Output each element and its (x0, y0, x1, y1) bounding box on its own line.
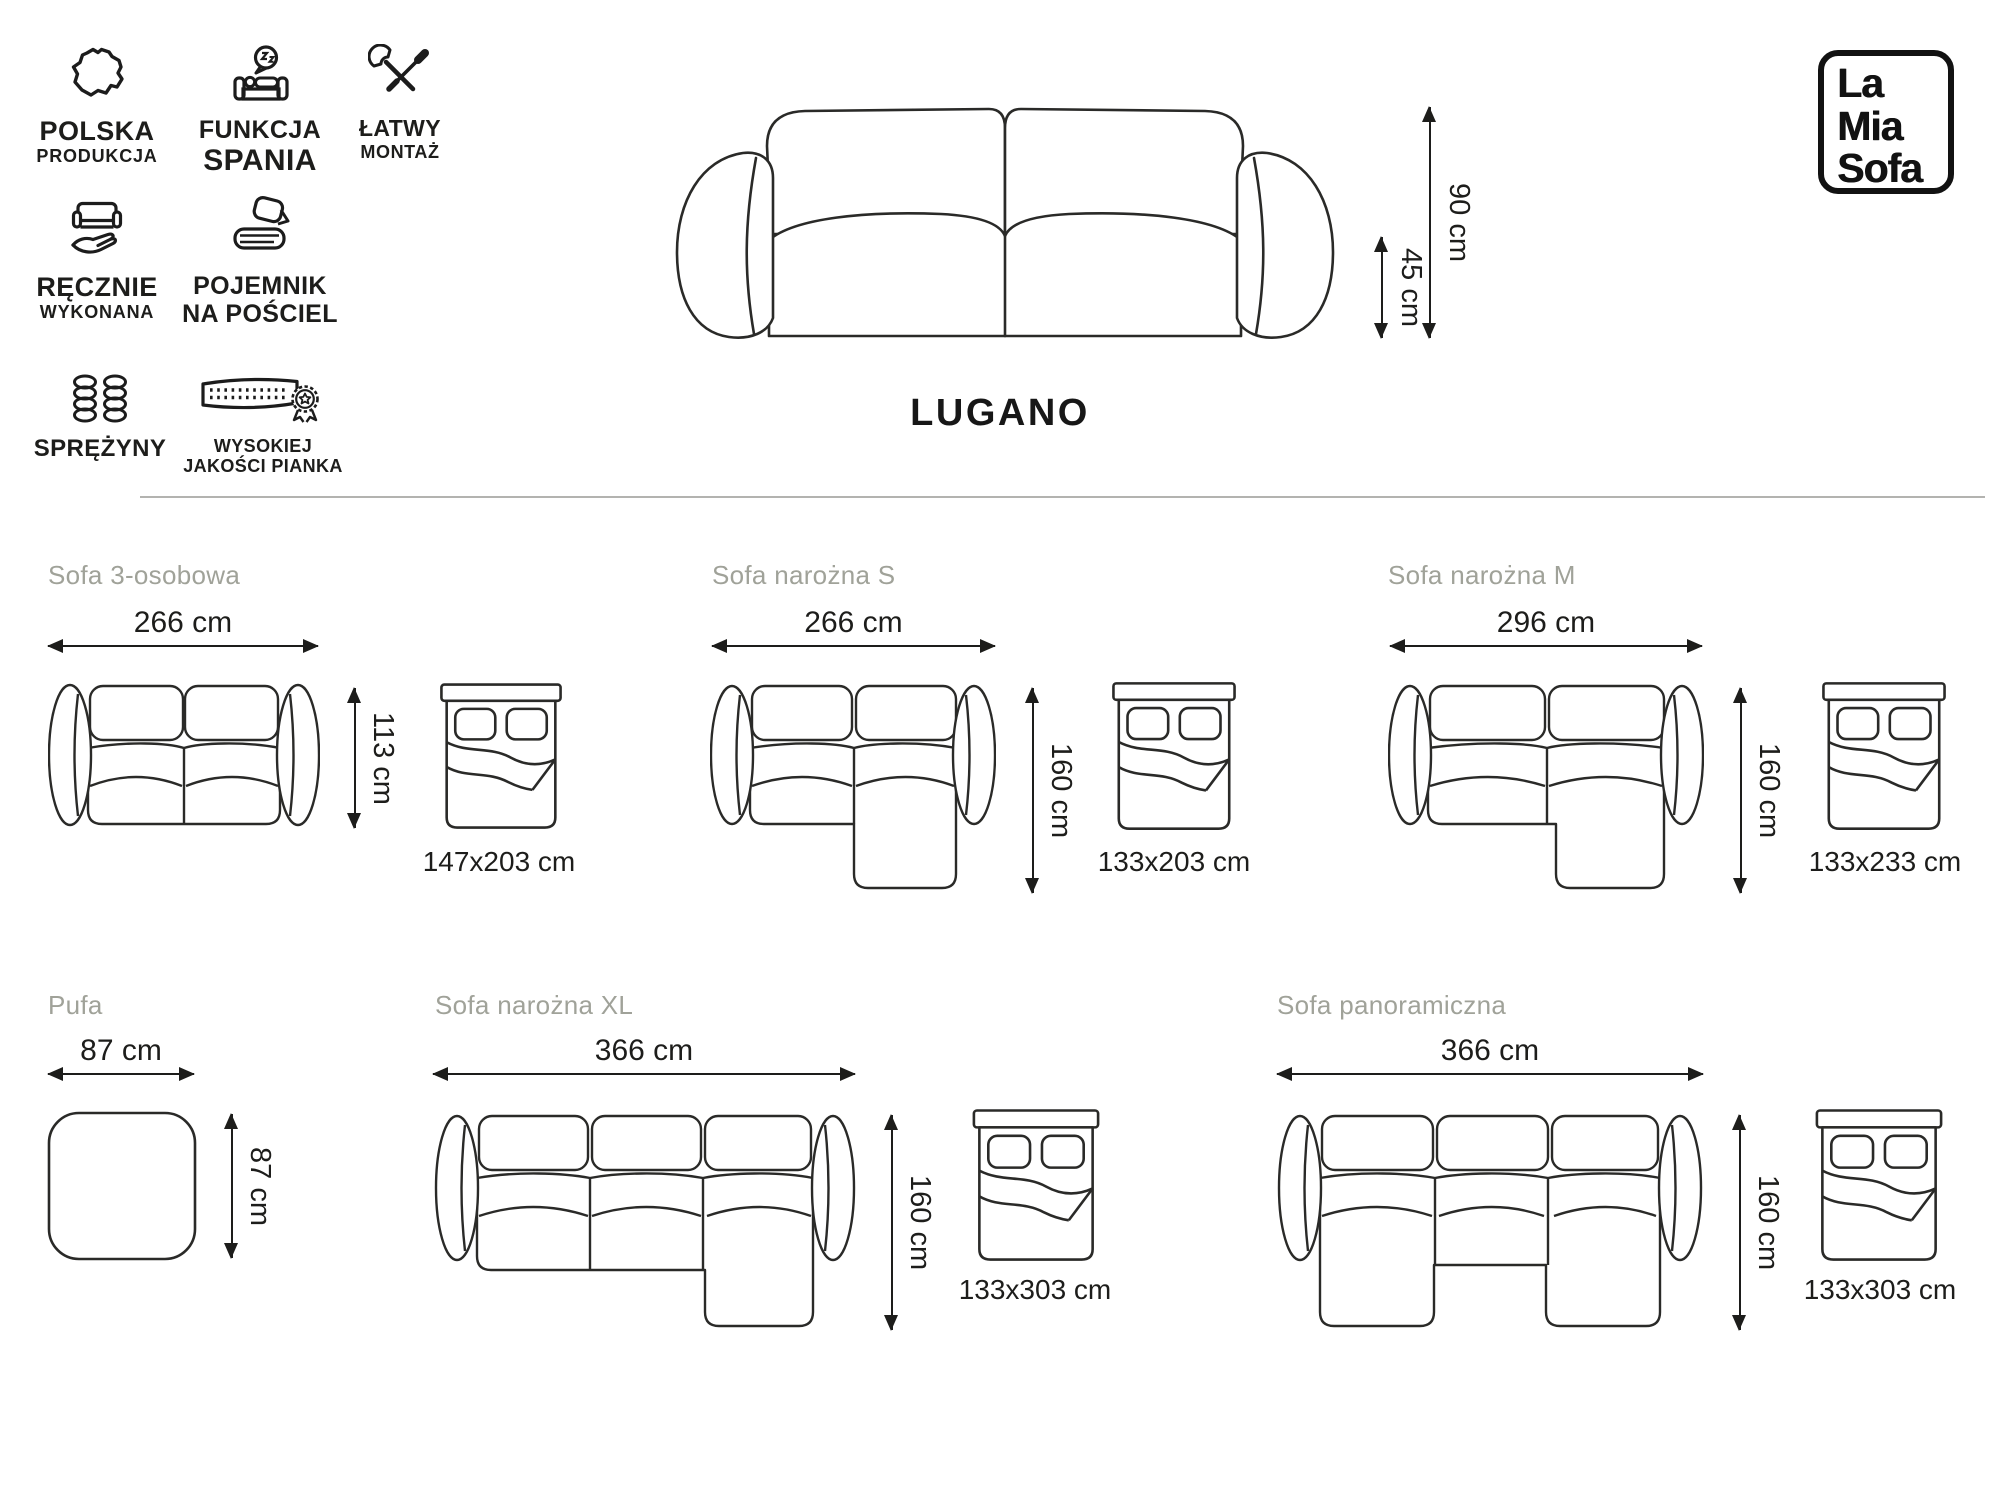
depth-dimension-arrow (1739, 1115, 1741, 1330)
feature-subtitle: PRODUKCJA (36, 146, 157, 167)
width-dimension-arrow (1390, 645, 1702, 647)
sofa-top-view-3-seater (48, 682, 320, 828)
bed-top-view-icon (1822, 681, 1946, 833)
depth-label: 113 cm (366, 688, 399, 828)
depth-dimension-arrow (891, 1115, 893, 1330)
feature-subtitle: MONTAŻ (360, 142, 439, 163)
width-dimension-arrow (433, 1073, 855, 1075)
feature-polska-produkcja: POLSKA PRODUKCJA (30, 44, 164, 167)
depth-label: 160 cm (903, 1115, 936, 1330)
feature-subtitle: WYKONANA (40, 302, 154, 323)
width-dimension-arrow (712, 645, 995, 647)
variant-title-sofa-narozna-s: Sofa narożna S (712, 560, 895, 591)
feature-subtitle: JAKOŚCI PIANKA (183, 456, 343, 477)
feature-latwy-montaz: ŁATWY MONTAŻ (330, 44, 470, 162)
handmade-icon (64, 196, 130, 264)
feature-title: RĘCZNIE (36, 272, 157, 302)
variant-title-sofa-narozna-m: Sofa narożna M (1388, 560, 1576, 591)
quality-foam-icon (200, 372, 326, 428)
feature-funkcja-spania: FUNKCJA SPANIA (183, 44, 337, 179)
bed-top-view-icon (440, 681, 562, 833)
sofa-top-view-corner-m (1388, 682, 1704, 894)
pouf-top-view (46, 1110, 198, 1262)
bed-top-view-icon (972, 1109, 1100, 1263)
bed-size-label: 133x233 cm (1785, 846, 1985, 878)
depth-dimension-arrow (1740, 688, 1742, 893)
sleep-function-icon (227, 44, 293, 108)
depth-dimension-arrow (354, 688, 356, 828)
product-name: LUGANO (700, 392, 1300, 435)
depth-dimension-arrow (231, 1114, 233, 1258)
feature-title: SPRĘŻYNY (34, 436, 167, 463)
bed-top-view-icon (1112, 681, 1236, 833)
width-label: 266 cm (48, 606, 318, 640)
feature-title: FUNKCJA (199, 116, 321, 144)
logo-line: Sofa (1837, 147, 1948, 190)
depth-dimension-arrow (1032, 688, 1034, 893)
bed-size-label: 133x203 cm (1074, 846, 1274, 878)
bed-top-view-icon (1815, 1109, 1943, 1263)
width-dimension-arrow (48, 1073, 194, 1075)
width-label: 366 cm (1277, 1034, 1703, 1068)
variant-title-sofa-narozna-xl: Sofa narożna XL (435, 990, 633, 1021)
feature-title: WYSOKIEJ (214, 436, 312, 456)
product-spec-sheet: POLSKA PRODUKCJA FUNKCJA SPANIA ŁATWY MO… (0, 0, 2000, 1500)
bedding-container-icon (227, 196, 293, 264)
feature-subtitle: SPANIA (203, 144, 317, 179)
bed-size-label: 133x303 cm (935, 1274, 1135, 1306)
depth-label: 160 cm (1752, 688, 1785, 893)
hero-seat-height-label: 45 cm (1394, 212, 1427, 362)
width-dimension-arrow (1277, 1073, 1703, 1075)
section-divider (140, 496, 1985, 498)
sofa-front-view-drawing (655, 106, 1355, 346)
width-label: 296 cm (1390, 606, 1702, 640)
logo-line: La (1837, 62, 1948, 105)
logo-line: Mia (1837, 105, 1948, 148)
feature-title: POJEMNIK (193, 272, 327, 300)
width-label: 366 cm (433, 1034, 855, 1068)
feature-pojemnik-na-posciel: POJEMNIK NA POŚCIEL (182, 196, 338, 329)
hero-height-dimension-arrow (1429, 107, 1431, 338)
springs-icon (68, 372, 132, 428)
poland-map-icon (65, 44, 129, 108)
variant-title-pufa: Pufa (48, 990, 103, 1021)
feature-recznie-wykonana: RĘCZNIE WYKONANA (30, 196, 164, 323)
bed-size-label: 133x303 cm (1780, 1274, 1980, 1306)
feature-title: POLSKA (40, 116, 155, 146)
depth-label: 160 cm (1044, 688, 1077, 893)
variant-title-sofa-panoramiczna: Sofa panoramiczna (1277, 990, 1506, 1021)
width-dimension-arrow (48, 645, 318, 647)
feature-title: ŁATWY (359, 116, 441, 142)
depth-label: 87 cm (243, 1114, 276, 1258)
feature-wysokiej-jakosci-pianka: WYSOKIEJ JAKOŚCI PIANKA (183, 372, 343, 477)
feature-subtitle: NA POŚCIEL (182, 300, 338, 329)
sofa-top-view-corner-s (710, 682, 996, 894)
sofa-top-view-panoramic (1276, 1108, 1704, 1332)
width-label: 87 cm (48, 1034, 194, 1068)
easy-assembly-icon (368, 44, 432, 108)
la-mia-sofa-logo: La Mia Sofa (1818, 50, 1954, 194)
width-label: 266 cm (712, 606, 995, 640)
feature-sprezyny: SPRĘŻYNY (33, 372, 167, 463)
variant-title-sofa-3-osobowa: Sofa 3-osobowa (48, 560, 240, 591)
hero-seat-height-dimension-arrow (1381, 237, 1383, 338)
hero-height-label: 90 cm (1442, 107, 1475, 338)
bed-size-label: 147x203 cm (409, 846, 589, 878)
sofa-top-view-corner-xl (433, 1108, 857, 1332)
